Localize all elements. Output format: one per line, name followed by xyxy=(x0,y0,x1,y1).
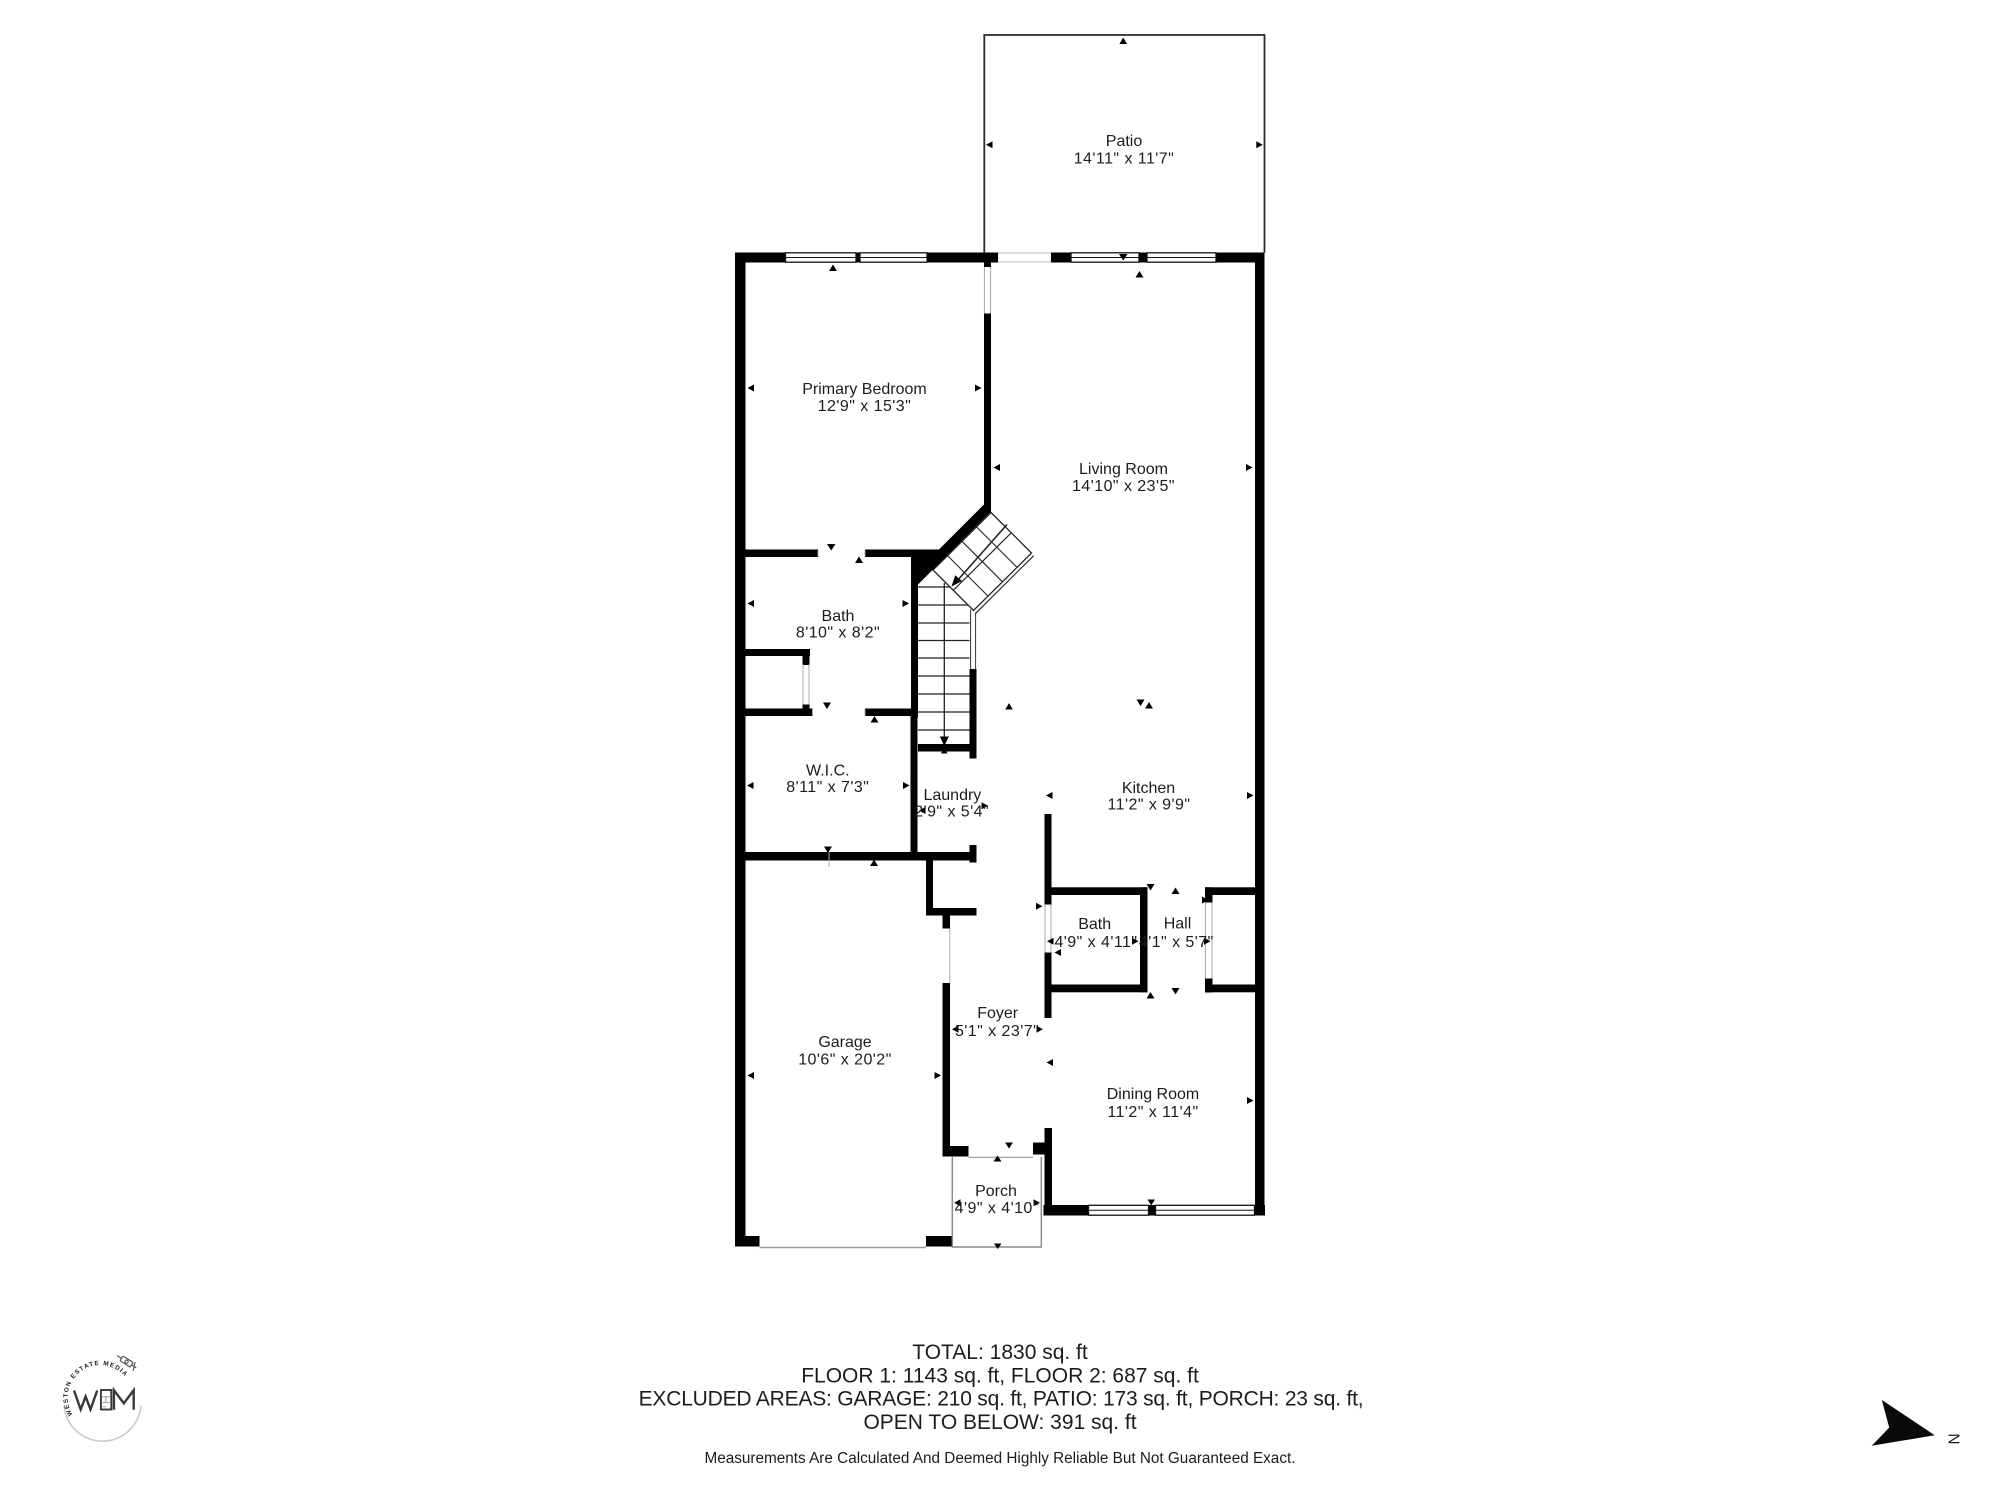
svg-text:Measurements Are Calculated An: Measurements Are Calculated And Deemed H… xyxy=(705,1450,1296,1467)
svg-text:11'2" x 11'4": 11'2" x 11'4" xyxy=(1107,1104,1198,1121)
svg-text:Kitchen: Kitchen xyxy=(1122,780,1175,797)
svg-text:11'2" x 9'9": 11'2" x 9'9" xyxy=(1107,796,1190,813)
svg-text:10'6" x 20'2": 10'6" x 20'2" xyxy=(798,1052,892,1069)
svg-text:Living Room: Living Room xyxy=(1079,461,1168,478)
svg-text:Hall: Hall xyxy=(1164,916,1192,933)
svg-text:Porch: Porch xyxy=(975,1183,1017,1200)
svg-text:Bath: Bath xyxy=(822,608,855,625)
svg-text:EXCLUDED AREAS: GARAGE: 210 sq: EXCLUDED AREAS: GARAGE: 210 sq. ft, PATI… xyxy=(639,1388,1364,1411)
svg-text:4'9" x 4'11": 4'9" x 4'11" xyxy=(1054,934,1137,951)
svg-text:14'11" x 11'7": 14'11" x 11'7" xyxy=(1074,150,1175,167)
svg-text:Bath: Bath xyxy=(1078,916,1111,933)
svg-text:WESTON ESTATE MEDIA: WESTON ESTATE MEDIA xyxy=(63,1360,130,1417)
svg-text:8'10" x 8'2": 8'10" x 8'2" xyxy=(796,624,880,641)
svg-text:Primary Bedroom: Primary Bedroom xyxy=(802,381,926,398)
svg-text:Garage: Garage xyxy=(818,1034,871,1051)
svg-text:4'1" x 5'7": 4'1" x 5'7" xyxy=(1139,934,1214,951)
svg-text:4'9" x 4'10": 4'9" x 4'10" xyxy=(955,1200,1039,1217)
svg-text:FLOOR 1: 1143 sq. ft, FLOOR 2:: FLOOR 1: 1143 sq. ft, FLOOR 2: 687 sq. f… xyxy=(801,1364,1199,1387)
svg-text:2'9" x 5'4": 2'9" x 5'4" xyxy=(914,804,989,821)
svg-text:TOTAL: 1830 sq. ft: TOTAL: 1830 sq. ft xyxy=(912,1341,1088,1364)
svg-text:Dining Room: Dining Room xyxy=(1107,1086,1199,1103)
svg-text:5'1" x 23'7": 5'1" x 23'7" xyxy=(955,1023,1039,1040)
svg-text:12'9" x 15'3": 12'9" x 15'3" xyxy=(818,398,912,415)
svg-text:W.I.C.: W.I.C. xyxy=(806,762,850,779)
svg-text:Laundry: Laundry xyxy=(923,787,981,804)
svg-text:Patio: Patio xyxy=(1106,133,1143,150)
svg-text:Foyer: Foyer xyxy=(977,1005,1019,1022)
svg-text:OPEN TO BELOW: 391 sq. ft: OPEN TO BELOW: 391 sq. ft xyxy=(863,1411,1136,1434)
svg-text:N: N xyxy=(1945,1433,1962,1444)
svg-text:8'11" x 7'3": 8'11" x 7'3" xyxy=(786,779,869,796)
svg-text:14'10" x 23'5": 14'10" x 23'5" xyxy=(1072,478,1175,495)
